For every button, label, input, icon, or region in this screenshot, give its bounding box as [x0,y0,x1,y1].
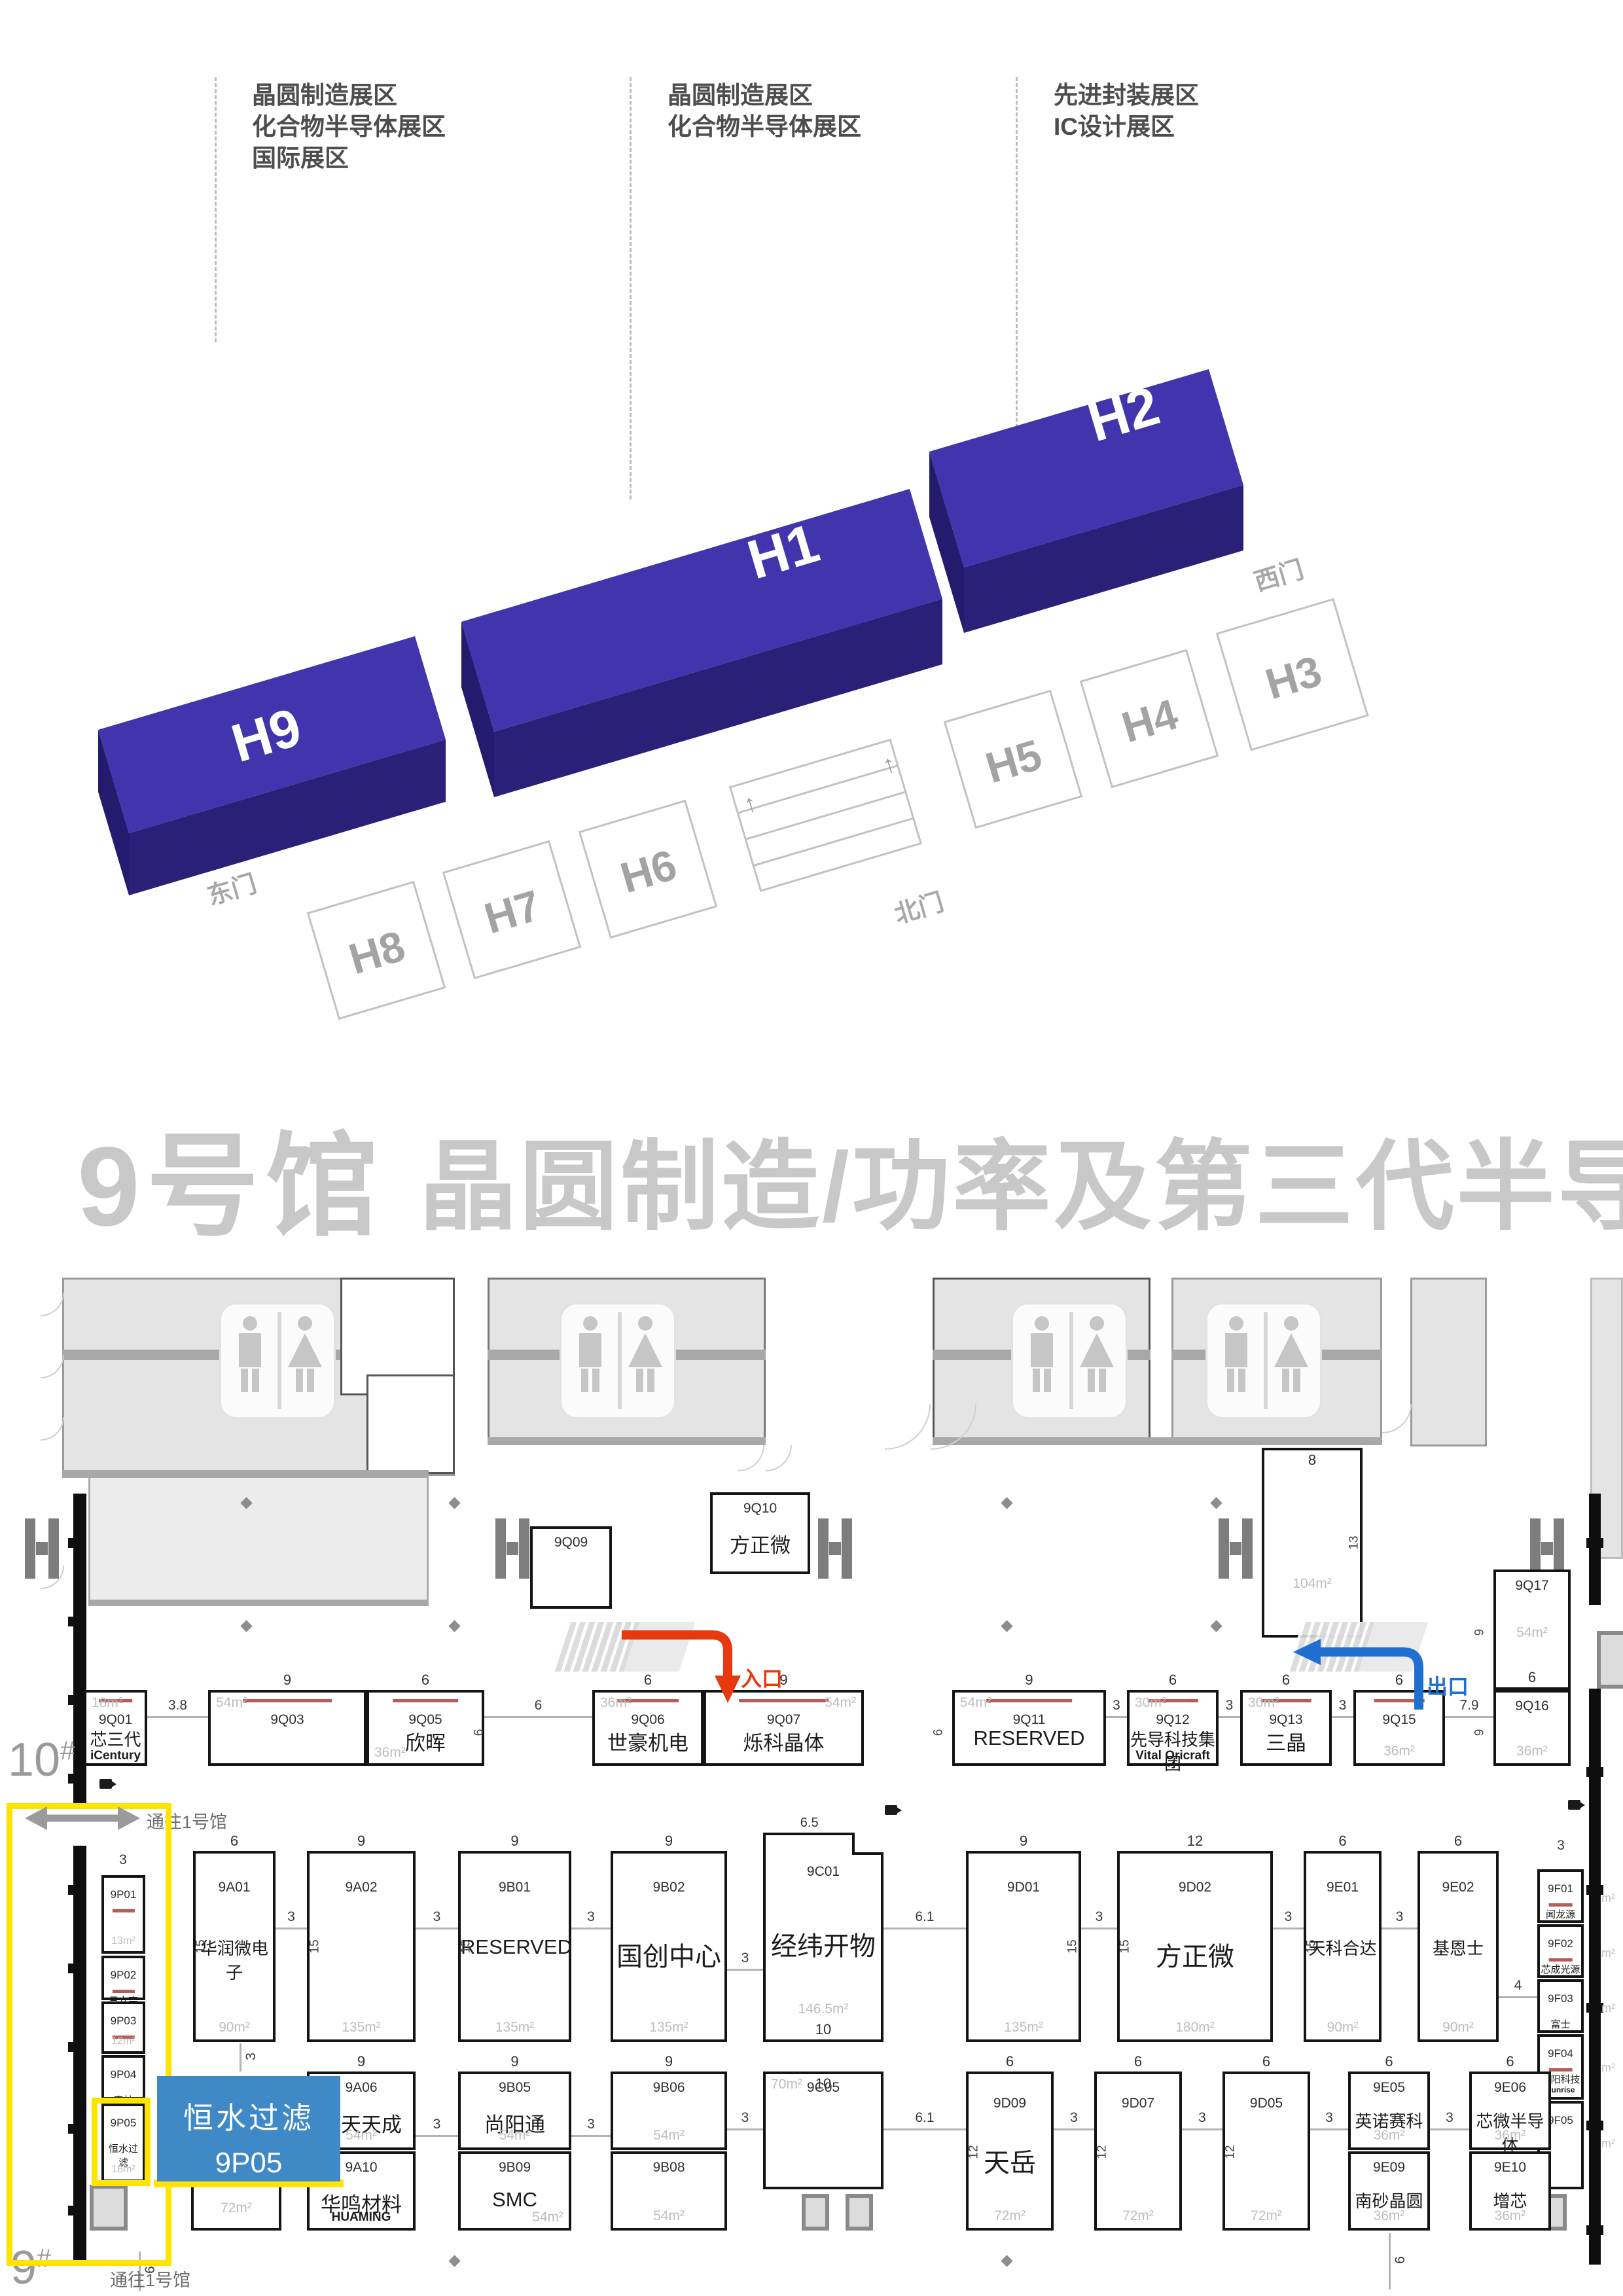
elevator-icon [495,1518,529,1579]
highlight-booth-ring [92,2098,151,2186]
booth-id: 9B08 [613,2160,724,2176]
dimension-line [1182,2128,1222,2130]
booth-area-label: 135m² [613,2020,724,2036]
dimension-line [1273,1928,1304,1929]
booth-depth-label: 15 [1065,1939,1080,1953]
booth-9D05: 9D05672m²12 [1222,2072,1310,2231]
booth-depth-label: 15 [1118,1939,1133,1953]
elevator-icon [25,1518,59,1579]
door-arc [766,1445,792,1471]
booth-width-label: 9 [461,1833,569,1850]
booth-width-label: 9 [613,2053,724,2070]
dimension-label: 3 [1557,1838,1565,1854]
booth-width-label: 9 [613,1833,724,1850]
highlight-callout-name: 恒水过滤 [157,2094,340,2138]
booth-company-name: 芯成光源 [1540,1962,1581,1976]
booth-id: 9F02 [1540,1937,1581,1950]
booth-area-label: 54m² [613,2208,724,2224]
booth-9E05: 9E056英诺赛科36m² [1348,2072,1430,2150]
small-red-text-bar [1548,2068,1573,2072]
exhibition-floorplan-page: 晶圆制造展区化合物半导体展区国际展区晶圆制造展区化合物半导体展区先进封装展区IC… [0,0,1623,2296]
dimension-line [276,1928,307,1929]
booth-id: 9D07 [1097,2096,1179,2111]
booth-company-name: 经纬开物 [766,1925,881,1963]
booth-width-label: 6 [1420,1833,1496,1850]
highlight-callout-booth: 9P05 [157,2147,340,2179]
booth-width-label: 9 [461,2053,569,2070]
booth-9B08: 9B0854m² [611,2151,727,2231]
dimension-line [240,2043,241,2072]
booth-9D01: 9D019135m²15 [966,1851,1081,2042]
small-red-text-bar [1548,1958,1573,1962]
booth-id: 9A02 [310,1880,413,1895]
column-grid-dot [1001,2255,1012,2267]
booth-id: 9F03 [1540,1992,1581,2005]
column-grid-dot [448,2255,460,2267]
restroom-icon [1205,1302,1322,1419]
dimension-label: 3 [1070,2110,1078,2126]
gate-east-label: 东门 [204,870,260,911]
gate-west-label: 西门 [1251,556,1307,597]
booth-id: 9Q09 [533,1535,609,1551]
female-figure-icon [626,1316,665,1401]
booth-area-label: 72m² [969,2208,1051,2224]
booth-area-label: 135m² [310,2020,413,2036]
booth-area-label: 135m² [461,2020,569,2036]
booth-depth-label: 15 [1305,1939,1319,1953]
dimension-label: 3 [741,1950,749,1966]
exit-arrow [1318,1652,1419,1710]
door-icon [846,2194,873,2231]
booth-company-name-en: HUAMING [310,2210,413,2225]
door-arc [738,1445,764,1471]
elevator-icon [1219,1518,1253,1579]
booth-9A01: 9A016华润微电子90m²15 [193,1851,276,2042]
booth-id: 9F01 [1540,1882,1581,1895]
booth-depth-label: 12 [1096,2145,1110,2159]
booth-width-label: 6 [1306,1833,1379,1850]
booth-id: 9E10 [1472,2160,1548,2176]
zone-label-2: 晶圆制造展区化合物半导体展区 [668,80,861,143]
booth-corner-notch [852,1833,883,1855]
wall-band [933,1437,1382,1445]
booth-area-label: 90m² [196,2020,273,2036]
booth-id: 9E01 [1306,1880,1379,1895]
booth-9A02: 9A029135m²15 [307,1851,416,2042]
booth-area-label: 36m² [1472,2128,1548,2144]
booth-id: 9D09 [969,2096,1051,2111]
booth-9B09: 9B09SMC54m² [458,2151,571,2231]
building-room [366,1374,455,1474]
booth-depth-label: 15 [308,1939,323,1953]
dimension-line [1389,2233,1391,2289]
booth-width-label: 6 [1472,2053,1548,2070]
dimension-line [727,2128,763,2130]
booth-depth-label: 12 [967,2145,982,2159]
booth-depth-label: 13 [1347,1535,1361,1549]
booth-9D02: 9D0212方正微180m²15 [1117,1851,1273,2042]
booth-id: 9E06 [1472,2080,1548,2096]
booth-id: 9D05 [1225,2096,1308,2111]
booth-company-name: 方正微 [1120,1935,1270,1973]
dimension-line [883,1928,966,1929]
highlight-region-outline [7,1803,171,2266]
booth-depth-label: 15 [194,1939,209,1953]
booth-9E09: 9E09南砂晶圆36m² [1348,2151,1430,2231]
page-title-hall: 9号馆 [77,1094,385,1258]
booth-id: 9B05 [461,2080,569,2096]
booth-company-name: 国创中心 [613,1935,724,1973]
booth-id: 9D01 [969,1880,1079,1895]
booth-width-label: 12 [1120,1833,1270,1850]
dimension-label: 3 [287,1909,295,1925]
dimension-label: 6.1 [915,1909,934,1925]
elevator-icon [818,1518,852,1579]
dimension-line [1054,2128,1094,2130]
door-arc [41,1293,64,1316]
male-figure-icon [1022,1316,1061,1401]
female-figure-icon [1077,1316,1116,1401]
entrance-arrow [622,1635,728,1677]
dimension-line [416,1928,458,1929]
booth-9C01: 9C01经纬开物146.5m²106.53.5 [763,1833,883,2042]
dimension-label: 3 [1096,1909,1103,1925]
dimension-label: 3 [1396,1909,1404,1925]
booth-9E01: 9E016天科合达90m²15 [1304,1851,1382,2042]
booth-width-label: 6 [969,2053,1051,2070]
dimension-line [416,2135,458,2137]
booth-area-label: 54m² [532,2210,563,2225]
booth-area-label: 90m² [1306,2020,1379,2036]
dimension-label: 3 [433,2117,441,2132]
booth-area-label: 146.5m² [766,2001,881,2017]
booth-depth-label: 12 [1224,2145,1238,2159]
booth-9E10: 9E10增芯36m² [1469,2151,1551,2231]
booth-area-label: 72m² [1225,2208,1308,2224]
booth-area-label: 36m² [1351,2208,1427,2224]
restroom-icon [560,1302,676,1419]
booth-id: 9E09 [1351,2160,1427,2176]
zone-label-3: 先进封装展区IC设计展区 [1054,80,1199,143]
booth-company-name: RESERVED [461,1935,569,1959]
booth-area-label: 70m² [771,2077,802,2092]
booth-bottom-label: 10 [766,2021,881,2038]
booth-9F03: 9F03富士12m² [1537,1979,1584,2033]
small-red-text-bar [1548,1903,1573,1907]
dimension-label: 3 [433,1909,441,1925]
booth-company-name: 富士 [1540,2017,1581,2031]
door-arc [41,1417,64,1441]
male-figure-icon [571,1316,610,1401]
zone-label-1: 晶圆制造展区化合物半导体展区国际展区 [252,80,446,174]
dimension-line [1310,2128,1348,2130]
booth-company-name: 方正微 [713,1529,808,1558]
booth-width-label: 9 [969,1833,1079,1850]
booth-9E06: 9E066芯微半导体36m² [1469,2072,1551,2150]
booth-company-name: SMC [461,2188,569,2212]
door-arc [885,1404,931,1450]
dimension-line [1430,2128,1469,2130]
highlight-callout: 恒水过滤 9P05 [157,2076,340,2181]
flow-arrows-layer [0,1571,1623,1833]
dimension-label: 3 [587,2117,595,2132]
door-arc [1382,1404,1412,1433]
dimension-label: 3 [1285,1909,1293,1925]
booth-width-label: 9 [310,1833,413,1850]
booth-area-label: 36m² [1351,2128,1427,2144]
booth-id: 9B06 [613,2080,724,2096]
dimension-line [571,1928,611,1929]
booth-area-label: 90m² [1420,2020,1496,2036]
booth-9E02: 9E026基恩士90m² [1418,1851,1499,2042]
entrance-label: 入口 [741,1662,783,1693]
booth-9D07: 9D07672m²12 [1094,2072,1182,2231]
dimension-label: 3 [243,2053,259,2060]
page-title-subtitle: 晶圆制造/功率及第三代半导体 [419,1107,1623,1249]
column-grid-dot [1210,1497,1222,1509]
dimension-label: 3 [1198,2110,1206,2126]
booth-9F01: 9F01闻龙源15m² [1537,1869,1584,1923]
booth-9F02: 9F02芯成光源12m² [1537,1924,1584,1978]
booth-width-label: 6 [1225,2053,1308,2070]
dimension-label: 6.1 [915,2110,934,2126]
booth-id: 9B09 [461,2160,569,2176]
booth-9C05: 9C051070m² [763,2072,883,2189]
dimension-label: 3 [741,2110,749,2126]
booth-id: 9Q10 [713,1501,808,1516]
dimension-label: 3 [1446,2110,1454,2126]
exit-label: 出口 [1427,1670,1469,1700]
dimension-label: 6 [1393,2256,1408,2264]
dimension-line [1382,1928,1418,1929]
booth-company-name: 基恩士 [1420,1935,1496,1960]
dimension-line [571,2135,611,2137]
booth-id: 9D02 [1120,1880,1270,1895]
booth-area-label: 180m² [1120,2020,1270,2036]
wall-band [488,1437,766,1445]
booth-area-label: 135m² [969,2020,1079,2036]
entrance-arrowhead [715,1676,741,1703]
dimension-label: 3 [1325,2110,1333,2126]
restroom-icon [1011,1302,1128,1419]
booth-9D09: 9D096天岳72m²12 [966,2072,1054,2231]
booth-width-label: 6 [196,1833,273,1850]
booth-width-label: 9 [310,2053,413,2070]
dimension-label: 4 [1514,1978,1522,1994]
door-icon [802,2194,829,2231]
booth-area-label: 72m² [1097,2208,1179,2224]
booth-id: 9A01 [196,1880,273,1895]
booth-width-label: 6 [1351,2053,1427,2070]
plan-zone-caption: 晶圆制造/设备/零部件/功率及第三代半导体展区 [526,2289,1099,2296]
booth-id: 9E02 [1420,1880,1496,1895]
door-arc [41,1355,64,1378]
booth-area-label: 36m² [1472,2208,1548,2224]
column-grid-dot [1001,1497,1012,1509]
gate-north-label: 北门 [891,889,947,929]
booth-area-label: 54m² [461,2128,569,2144]
dimension-line [727,1969,763,1971]
booth-depth-label: 15 [459,1939,474,1953]
booth-9B01: 9B019RESERVED135m²15 [458,1851,571,2042]
wall-band [62,1470,429,1478]
booth-id: 9C01 [766,1864,881,1880]
booth-id: 9B01 [461,1880,569,1895]
booth-id: 9B02 [613,1880,724,1895]
exit-arrowhead [1293,1639,1321,1665]
link-to-hall1-bottom: 通往1号馆 [110,2266,190,2291]
building-block [1410,1278,1487,1446]
male-figure-icon [1217,1316,1256,1401]
booth-9B06: 9B06954m² [611,2072,727,2150]
dimension-line [883,2128,966,2130]
booth-9Q10: 9Q10方正微 [710,1492,810,1574]
dimension-label: 3 [587,1909,595,1925]
booth-area-label: 54m² [613,2128,724,2144]
hall-overview-3d: H9 H1 H2 H8 H7 H6 H5 H [0,262,1623,1047]
female-figure-icon [1272,1316,1311,1401]
booth-company-name: 闻龙源 [1540,1907,1581,1921]
male-figure-icon [230,1316,270,1401]
booth-area-label: 72m² [194,2200,279,2216]
dimension-line [1499,1996,1537,1998]
column-grid-dot [448,1497,460,1509]
booth-9B05: 9B059尚阳通54m² [458,2072,571,2150]
female-figure-icon [285,1316,325,1401]
restroom-icon [219,1302,336,1419]
dimension-line [1081,1928,1117,1929]
booth-width-label: 6 [1097,2053,1179,2070]
booth-top-inside-label: 8 [1264,1452,1360,1469]
booth-9B02: 9B029国创中心135m² [611,1851,727,2042]
booth-id: 9E05 [1351,2080,1427,2096]
